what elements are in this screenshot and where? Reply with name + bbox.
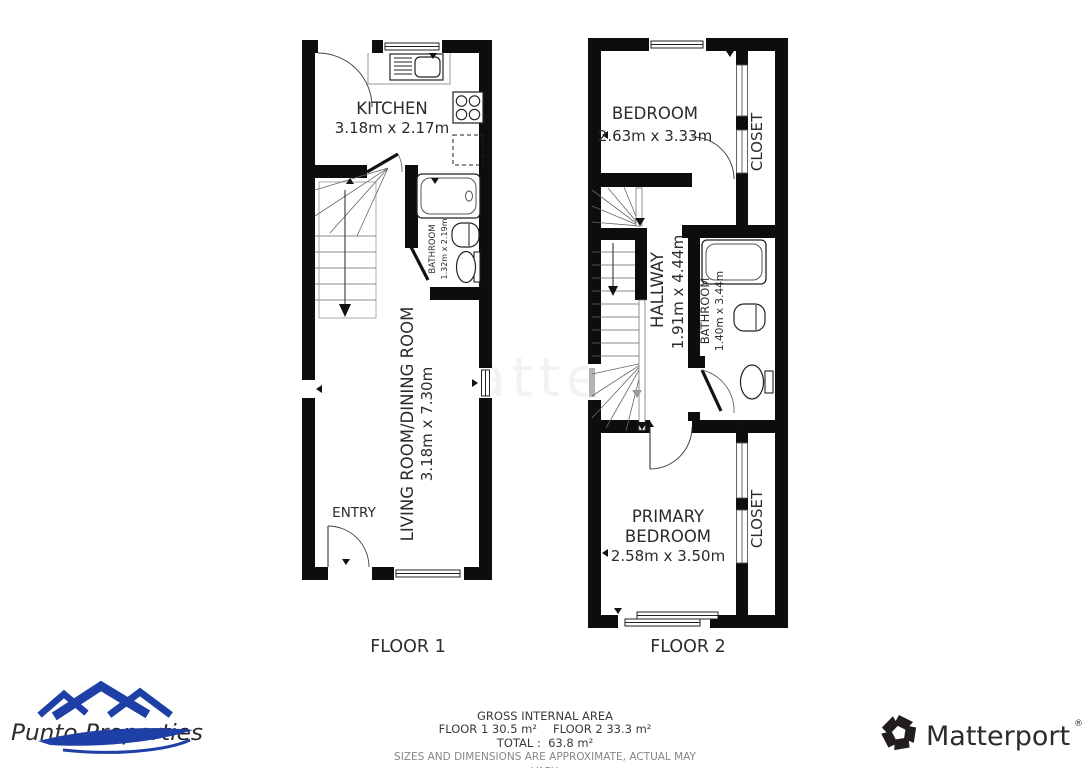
summary-title: GROSS INTERNAL AREA [380, 709, 710, 723]
closet-bottom-label: CLOSET [748, 489, 766, 548]
entry-label: ENTRY [332, 505, 376, 521]
bathroom-label: BATHROOM [428, 224, 438, 273]
kitchen-dims: 3.18m x 2.17m [335, 119, 449, 137]
bathroom-dims: 1.32m x 2.19m [440, 218, 449, 279]
kitchen-label: KITCHEN [356, 99, 428, 118]
living-room-label: LIVING ROOM/DINING ROOM [398, 307, 417, 542]
bathtub-icon [702, 240, 766, 284]
bedroom-dims: 2.63m x 3.33m [598, 127, 712, 145]
roof-icon [42, 686, 168, 714]
floor2-caption: FLOOR 2 [608, 637, 768, 657]
matterport-wordmark: Matterport [926, 721, 1070, 752]
toilet-icon [457, 252, 481, 283]
registered-mark: ® [1074, 719, 1083, 729]
primary-bedroom-label-line1: PRIMARY [632, 507, 705, 526]
window-icon [589, 368, 595, 397]
closet-top-label: CLOSET [748, 112, 766, 171]
primary-bedroom-label-line2: BEDROOM [625, 527, 711, 546]
bathroom-dims: 1.40m x 3.44m [714, 271, 726, 351]
matterport-pinwheel-icon [878, 714, 920, 756]
hallway-dims: 1.91m x 4.44m [669, 235, 687, 349]
sink-icon [390, 54, 443, 80]
floor1-area: FLOOR 1 30.5 m² [439, 723, 537, 736]
bedroom-label: BEDROOM [612, 104, 698, 123]
matterport-logo: Matterport ® [878, 708, 1084, 758]
floorplan-page: Matterport [0, 0, 1086, 768]
floor1-caption: FLOOR 1 [328, 637, 488, 657]
floor1-plan: KITCHEN 3.18m x 2.17m BATHROOM 1.32m x 2… [302, 40, 492, 580]
washbasin-icon [452, 223, 479, 247]
living-room-dims: 3.18m x 7.30m [418, 367, 436, 481]
primary-bedroom-dims: 2.58m x 3.50m [611, 547, 725, 565]
disclaimer: SIZES AND DIMENSIONS ARE APPROXIMATE, AC… [380, 750, 710, 768]
floor2-area: FLOOR 2 33.3 m² [553, 723, 651, 736]
hallway-label: HALLWAY [648, 251, 667, 328]
washbasin-icon [734, 304, 765, 331]
bathroom-label: BATHROOM [698, 278, 712, 345]
bathtub-icon [417, 174, 480, 218]
punto-properties-logo: Punto Properties [8, 678, 208, 758]
stove-icon [453, 92, 483, 123]
floor2-plan: BEDROOM 2.63m x 3.33m CLOSET HALLWAY 1.9… [588, 38, 788, 628]
area-summary: GROSS INTERNAL AREA FLOOR 1 30.5 m² FLOO… [380, 709, 710, 768]
total-area: TOTAL : 63.8 m² [380, 736, 710, 750]
